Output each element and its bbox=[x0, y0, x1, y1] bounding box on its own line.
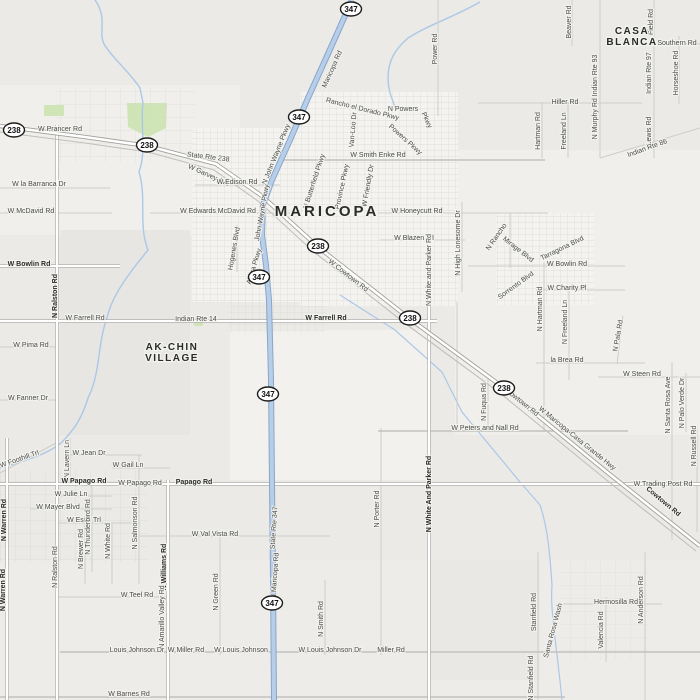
route-shield-number: 347 bbox=[344, 5, 358, 14]
road-label: W Trading Post Rd bbox=[634, 481, 693, 488]
road-label: W Charity Pl bbox=[548, 285, 587, 292]
route-shield: 238 bbox=[308, 239, 329, 253]
route-shield-number: 347 bbox=[261, 390, 275, 399]
road-label: N Smith Rd bbox=[318, 601, 325, 637]
road-label: N Stanfield Rd bbox=[528, 655, 535, 700]
road-label: Hartman Rd bbox=[535, 112, 542, 150]
map-canvas[interactable]: Maricopa RdPower RdRancho el Dorado Pkwy… bbox=[0, 0, 700, 700]
road-label: W Bowlin Rd bbox=[8, 261, 51, 268]
road-label: N Williams Rd bbox=[161, 544, 168, 591]
road-label: Power Rd bbox=[432, 34, 439, 65]
road-label: Lewis Rd bbox=[646, 117, 653, 146]
road-label: Valencia Rd bbox=[598, 611, 605, 648]
road-label: W Papago Rd bbox=[118, 480, 162, 487]
road-label: Hiller Rd bbox=[552, 99, 579, 106]
road-label: W Louis Johnson bbox=[214, 647, 268, 654]
place-label: CASA bbox=[615, 26, 649, 37]
road-label: Indian Rte 97 bbox=[646, 52, 653, 94]
road-label: W Peters and Nall Rd bbox=[451, 425, 518, 432]
route-shield: 347 bbox=[289, 110, 310, 124]
road-label: W Mayer Blvd bbox=[36, 504, 80, 511]
road-label: W Barnes Rd bbox=[108, 691, 150, 698]
road-label: N Murphy Rd Indian Rte 93 bbox=[592, 54, 599, 139]
route-shield-number: 238 bbox=[140, 141, 154, 150]
road-label: la Brea Rd bbox=[550, 357, 583, 364]
road-label: N Porter Rd bbox=[374, 490, 381, 527]
road-label: W Fanner Dr bbox=[8, 395, 49, 402]
road-label: Hermosilla Rd bbox=[594, 599, 638, 606]
road-label: Freeland Ln bbox=[561, 112, 568, 149]
road-label: N Hartman Rd bbox=[537, 287, 544, 332]
road-label: N Amarillo Valley Rd bbox=[159, 585, 166, 648]
road-label: W Farrell Rd bbox=[305, 315, 346, 322]
road-label: W Miller Rd bbox=[168, 647, 204, 654]
road-label: Southern Rd bbox=[657, 40, 696, 47]
road-label: N White and Parker Rd bbox=[426, 234, 433, 306]
road-label: N Thunderbird Rd bbox=[85, 499, 92, 555]
road-label: N Freeland Ln bbox=[562, 300, 569, 344]
route-shield-number: 347 bbox=[292, 113, 306, 122]
route-shield: 238 bbox=[400, 311, 421, 325]
route-shield: 238 bbox=[4, 123, 25, 137]
route-shield-number: 238 bbox=[311, 242, 325, 251]
road-label: W Bowlin Rd bbox=[547, 261, 587, 268]
route-shield-number: 347 bbox=[265, 599, 279, 608]
road-label: W la Barranca Dr bbox=[12, 181, 66, 188]
road-label: W Steen Rd bbox=[623, 371, 661, 378]
route-shield-number: 238 bbox=[497, 384, 511, 393]
road-label: Papago Rd bbox=[176, 479, 213, 486]
road-label: W Edwards McDavid Rd bbox=[180, 208, 256, 215]
road-label: N Lavern Ln bbox=[64, 440, 71, 478]
road-label: W Jean Dr bbox=[72, 450, 106, 457]
place-label: VILLAGE bbox=[145, 353, 199, 364]
route-shield-number: 238 bbox=[403, 314, 417, 323]
road-label: W Farrell Rd bbox=[65, 315, 104, 322]
road-label: N Ralston Rd bbox=[52, 546, 59, 588]
road-label: W Pima Rd bbox=[13, 342, 49, 349]
road-label: W Smith Enke Rd bbox=[350, 152, 405, 159]
place-label: AK-CHIN bbox=[146, 342, 199, 353]
road-label: Horseshoe Rd bbox=[673, 51, 680, 96]
route-shield: 347 bbox=[249, 270, 270, 284]
road-label: N Palo Verde Dr bbox=[679, 377, 686, 428]
road-label: N Salmonson Rd bbox=[132, 496, 139, 549]
route-shield: 347 bbox=[341, 2, 362, 16]
road-label: W McDavid Rd bbox=[8, 208, 55, 215]
route-shield: 238 bbox=[494, 381, 515, 395]
road-label: W Teel Rd bbox=[121, 592, 153, 599]
road-label: N Anderson Rd bbox=[638, 576, 645, 624]
place-label: BLANCA bbox=[606, 37, 657, 48]
route-shield-number: 238 bbox=[7, 126, 21, 135]
road-label: N Warren Rd bbox=[1, 499, 8, 541]
road-label: Louis Johnson Dr bbox=[110, 647, 165, 654]
road-label: N Fuqua Rd bbox=[481, 383, 488, 421]
road-label: N Russell Rd bbox=[691, 425, 698, 466]
road-label: W Val Vista Rd bbox=[192, 531, 239, 538]
route-shield: 347 bbox=[262, 596, 283, 610]
road-label: N High Lonesome Dr bbox=[455, 210, 462, 276]
road-label: N Warren Rd bbox=[0, 569, 7, 611]
route-shield: 347 bbox=[258, 387, 279, 401]
road-label: W Edison Rd bbox=[217, 179, 258, 186]
road-label: Indian Rte 14 bbox=[175, 316, 217, 323]
road-label: W Louis Johnson Dr bbox=[298, 647, 362, 654]
road-label: N Green Rd bbox=[213, 573, 220, 610]
route-shield: 238 bbox=[137, 138, 158, 152]
road-label: Beaver Rd bbox=[566, 5, 573, 38]
road-label: Stanfield Rd bbox=[531, 593, 538, 631]
road-label: W Prancer Rd bbox=[38, 126, 82, 133]
road-label: N White And Parker Rd bbox=[426, 456, 433, 532]
road-label: N Ralston Rd bbox=[52, 274, 59, 318]
route-shield-number: 347 bbox=[252, 273, 266, 282]
place-label: MARICOPA bbox=[275, 203, 380, 220]
road-label: N Powers bbox=[388, 106, 419, 113]
road-label: W Honeycutt Rd bbox=[392, 208, 443, 215]
road-label: W Papago Rd bbox=[61, 478, 106, 485]
road-label: W Julie Ln bbox=[55, 491, 88, 498]
road-label: N White Rd bbox=[105, 523, 112, 559]
road-label: W Gail Ln bbox=[113, 462, 144, 469]
road-label: Miller Rd bbox=[377, 647, 405, 654]
road-label: N Santa Rosa Ave bbox=[665, 376, 672, 433]
road-label: N Brewer Rd bbox=[78, 529, 85, 569]
